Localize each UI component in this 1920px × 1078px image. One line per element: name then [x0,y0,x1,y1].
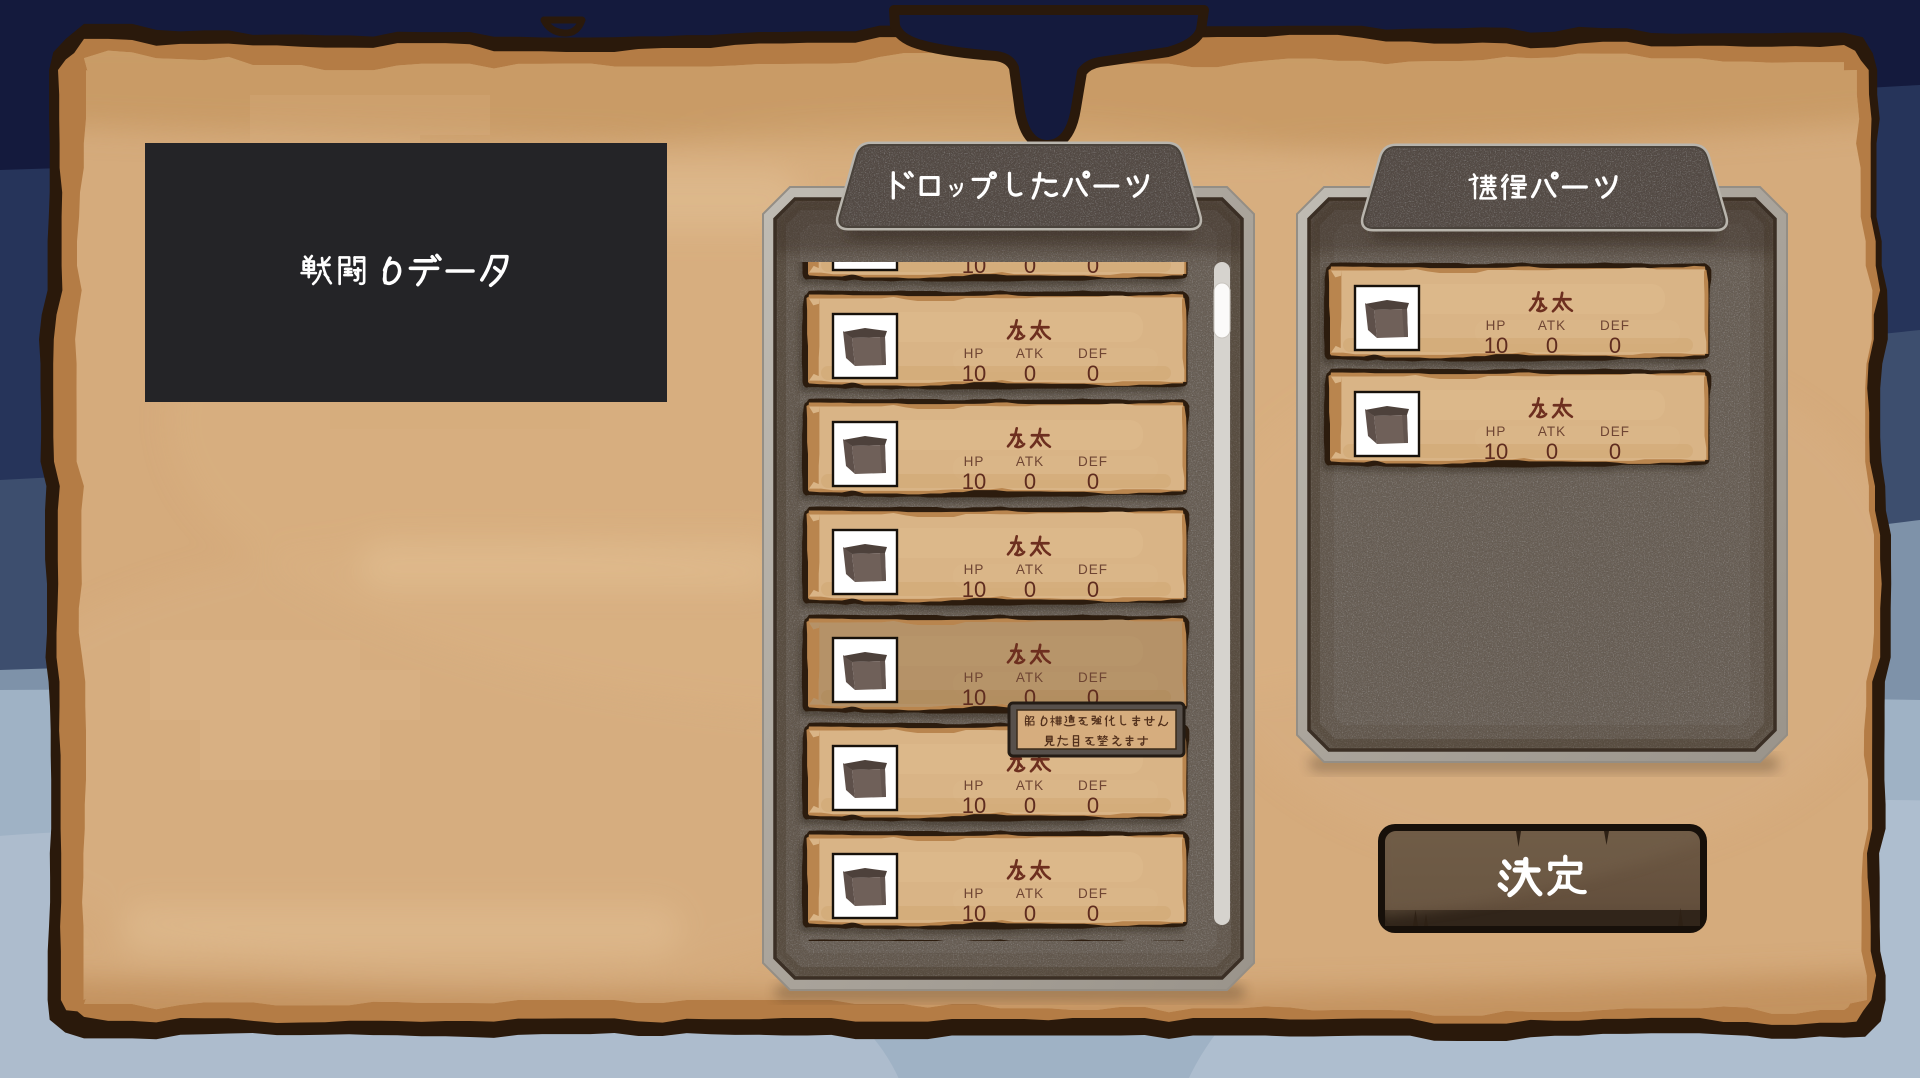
svg-text:DEF: DEF [1078,454,1108,469]
svg-text:0: 0 [1087,793,1099,818]
svg-text:HP: HP [1486,318,1507,333]
svg-text:DEF: DEF [1600,318,1630,333]
svg-text:HP: HP [964,346,985,361]
svg-text:ATK: ATK [1016,670,1044,685]
svg-text:DEF: DEF [1078,346,1108,361]
svg-text:10: 10 [962,901,986,926]
svg-text:DEF: DEF [1078,886,1108,901]
svg-text:0: 0 [1024,577,1036,602]
svg-text:HP: HP [964,562,985,577]
svg-text:10: 10 [962,469,986,494]
svg-text:10: 10 [962,577,986,602]
svg-text:0: 0 [1546,333,1558,358]
svg-text:0: 0 [1546,439,1558,464]
svg-text:ATK: ATK [1016,346,1044,361]
svg-text:0: 0 [1087,469,1099,494]
svg-text:0: 0 [1609,333,1621,358]
svg-text:0: 0 [1609,439,1621,464]
svg-text:ATK: ATK [1016,886,1044,901]
svg-text:HP: HP [964,778,985,793]
svg-text:0: 0 [1024,901,1036,926]
svg-text:DEF: DEF [1078,562,1108,577]
svg-text:10: 10 [1484,439,1508,464]
svg-text:0: 0 [1087,361,1099,386]
svg-text:DEF: DEF [1600,424,1630,439]
svg-text:DEF: DEF [1078,670,1108,685]
svg-text:ATK: ATK [1538,424,1566,439]
svg-text:ATK: ATK [1016,454,1044,469]
svg-text:0: 0 [1087,577,1099,602]
svg-text:10: 10 [962,793,986,818]
svg-text:HP: HP [964,886,985,901]
svg-text:0: 0 [1024,361,1036,386]
svg-text:10: 10 [962,685,986,710]
svg-text:DEF: DEF [1078,778,1108,793]
svg-text:0: 0 [1024,793,1036,818]
svg-text:HP: HP [1486,424,1507,439]
svg-text:10: 10 [962,361,986,386]
svg-text:ATK: ATK [1016,778,1044,793]
svg-text:ATK: ATK [1538,318,1566,333]
svg-text:0: 0 [1024,469,1036,494]
svg-text:ATK: ATK [1016,562,1044,577]
svg-text:HP: HP [964,670,985,685]
svg-text:10: 10 [1484,333,1508,358]
svg-text:0: 0 [1087,901,1099,926]
svg-text:HP: HP [964,454,985,469]
